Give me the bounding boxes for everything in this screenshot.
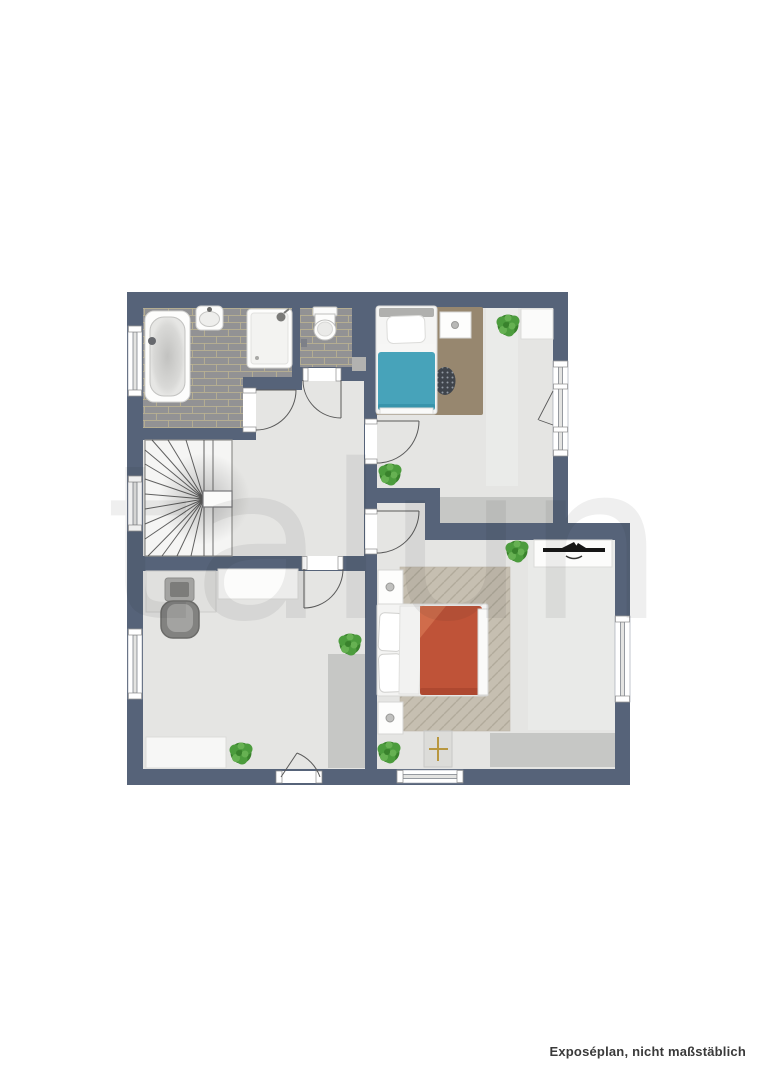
wardrobe	[328, 654, 365, 768]
gray-carpet	[490, 733, 615, 767]
drain-icon	[255, 356, 259, 360]
dresser	[146, 737, 226, 768]
basin-faucet-icon	[207, 307, 212, 312]
wc-counter	[352, 357, 366, 371]
disclaimer-text: Exposéplan, nicht maßstäblich	[549, 1044, 746, 1059]
round-dot-rug-dots	[435, 367, 456, 395]
bathtub	[145, 311, 190, 402]
flush-button-icon	[301, 339, 307, 347]
floorplan-svg: talun	[0, 0, 763, 1080]
footboard	[380, 408, 433, 414]
side-table	[424, 731, 452, 767]
floorplan-page: talun Exposéplan, nicht maßstäblich	[0, 0, 763, 1080]
nightstand	[378, 702, 403, 734]
teal-duvet	[378, 352, 435, 410]
shower-head-icon	[277, 313, 286, 322]
single-bed	[376, 306, 437, 414]
window	[128, 326, 142, 396]
nightstand	[440, 312, 471, 338]
window	[397, 770, 463, 783]
tub-faucet-icon	[148, 337, 156, 345]
shower	[247, 309, 292, 368]
watermark: talun	[105, 418, 665, 669]
washbasin	[196, 306, 223, 330]
pillow	[387, 315, 426, 343]
child-desk	[521, 309, 553, 339]
